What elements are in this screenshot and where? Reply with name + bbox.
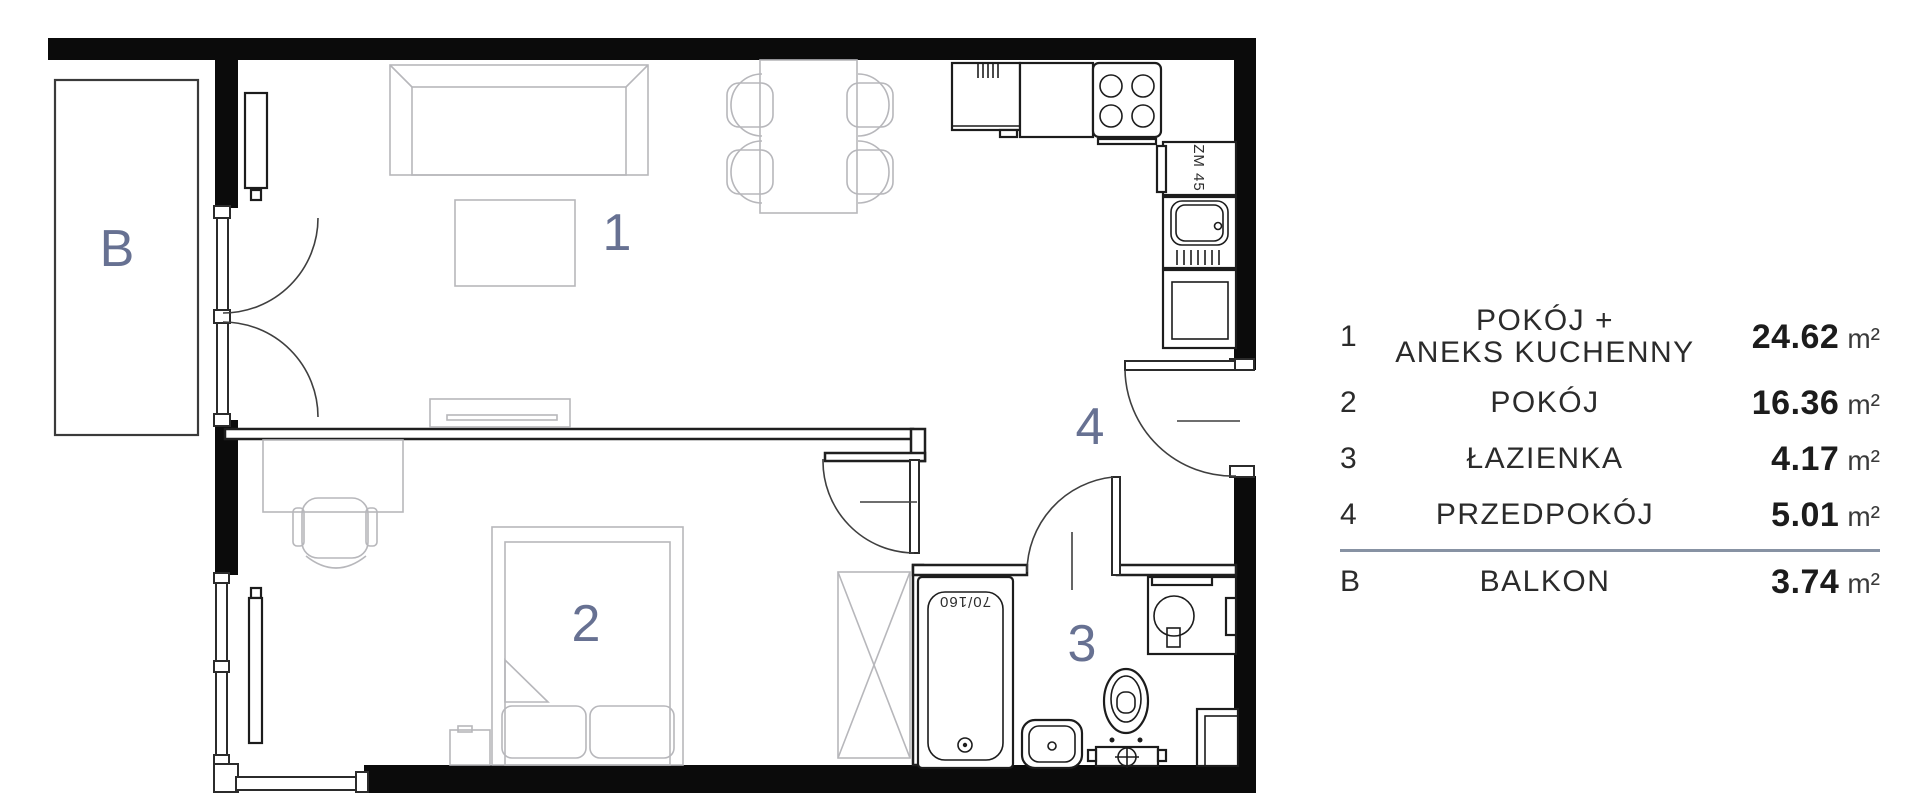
shaft <box>1197 709 1238 766</box>
room1-label: 1 <box>603 204 632 262</box>
area-unit: m² <box>1847 568 1880 599</box>
door-jamb <box>214 206 230 218</box>
fridge <box>952 63 1020 137</box>
window-mullion <box>356 772 368 792</box>
legend-room-name-line: POKÓJ + <box>1390 305 1700 337</box>
wall-right-upper <box>1234 38 1256 370</box>
legend-room-name: ŁAZIENKA <box>1390 443 1700 475</box>
wall-top <box>48 38 1256 60</box>
pillow <box>590 706 674 758</box>
stove-handle <box>1098 139 1156 144</box>
door-leaf <box>1112 477 1120 575</box>
legend-room-number: 2 <box>1340 386 1390 420</box>
legend-room-number: 1 <box>1340 320 1390 354</box>
floorplan-page: B <box>0 0 1920 808</box>
door-swing-arc <box>223 322 318 417</box>
dishwasher-size-label: ZM 45 <box>1190 144 1207 192</box>
balcony: B <box>55 80 198 435</box>
pillow <box>502 706 586 758</box>
area-legend: 1 POKÓJ + ANEKS KUCHENNY 24.62m² 2 POKÓJ… <box>1340 299 1880 612</box>
office-chair <box>293 498 377 568</box>
dining-chair <box>727 141 773 203</box>
area-value: 24.62 <box>1752 318 1840 356</box>
door-swing-arc <box>823 459 914 553</box>
fridge-body <box>952 63 1020 130</box>
counter-cabinet <box>1163 270 1236 348</box>
washbasin <box>1022 720 1082 768</box>
legend-row: 4 PRZEDPOKÓJ 5.01m² <box>1340 487 1880 543</box>
wall-room1-room2 <box>225 429 913 439</box>
dining-set <box>727 60 893 213</box>
dining-chair <box>847 141 893 203</box>
room4-label: 4 <box>1076 398 1105 456</box>
bathroom-fixtures: 70/160 <box>918 577 1238 768</box>
legend-room-name-line: PRZEDPOKÓJ <box>1390 499 1700 531</box>
door-leaf <box>910 460 919 553</box>
washing-machine <box>1148 577 1236 654</box>
area-value: 4.17 <box>1771 440 1839 478</box>
wall-bottom <box>364 765 1236 793</box>
wall-bath-top-right <box>1117 565 1236 575</box>
legend-room-number: 3 <box>1340 442 1390 476</box>
legend-room-area: 3.74m² <box>1700 563 1880 602</box>
legend-room-area: 24.62m² <box>1700 318 1880 357</box>
wall-left-middle <box>215 420 238 575</box>
kitchen-sink <box>1163 197 1236 268</box>
legend-row: 3 ŁAZIENKA 4.17m² <box>1340 431 1880 487</box>
kitchen: ZM 45 <box>952 63 1236 348</box>
legend-row: 1 POKÓJ + ANEKS KUCHENNY 24.62m² <box>1340 299 1880 375</box>
radiator <box>249 588 262 743</box>
dining-chair <box>847 74 893 136</box>
bathtub: 70/160 <box>918 577 1013 768</box>
balcony-label: B <box>100 220 135 278</box>
stove <box>1093 63 1161 144</box>
tv-cabinet <box>430 399 570 427</box>
area-unit: m² <box>1847 445 1880 476</box>
window-bottom-bedroom <box>214 764 368 792</box>
door-jamb <box>214 414 230 426</box>
legend-room-name: POKÓJ + ANEKS KUCHENNY <box>1390 305 1700 369</box>
legend-room-name: BALKON <box>1390 566 1700 598</box>
legend-room-name-line: ŁAZIENKA <box>1390 443 1700 475</box>
radiator <box>245 93 267 200</box>
blanket-fold <box>505 660 548 702</box>
area-value: 16.36 <box>1752 384 1840 422</box>
legend-row: 2 POKÓJ 16.36m² <box>1340 375 1880 431</box>
bathtub-size-label: 70/160 <box>939 593 991 610</box>
window-mullion <box>214 661 229 672</box>
door-swing-arc <box>1125 370 1236 476</box>
window-frame <box>236 777 362 790</box>
tub-drain-dot <box>963 743 967 747</box>
door-swing-arc <box>1027 477 1113 572</box>
sink-unit <box>1163 197 1236 268</box>
coffee-table <box>455 200 575 286</box>
door-swing-arc <box>223 218 318 313</box>
kitchen-counter <box>1020 63 1093 137</box>
area-unit: m² <box>1847 389 1880 420</box>
door-leaf <box>1125 361 1235 370</box>
legend-room-area: 4.17m² <box>1700 440 1880 479</box>
bedroom-door <box>823 459 919 553</box>
legend-row: B BALKON 3.74m² <box>1340 552 1880 612</box>
legend-room-number: B <box>1340 565 1390 599</box>
window-mullion <box>214 573 229 583</box>
stove-body <box>1093 63 1161 137</box>
legend-room-number: 4 <box>1340 498 1390 532</box>
dining-table <box>760 60 857 213</box>
toilet <box>1088 669 1166 768</box>
balcony-door <box>214 206 318 426</box>
legend-room-area: 16.36m² <box>1700 384 1880 423</box>
wall-left-upper <box>215 60 238 208</box>
area-unit: m² <box>1847 323 1880 354</box>
door-jamb <box>214 310 230 323</box>
entrance-door <box>1125 359 1254 477</box>
legend-room-name-line: POKÓJ <box>1390 387 1700 419</box>
fridge-foot <box>1000 130 1017 137</box>
living-room-furniture: 1 <box>245 60 893 427</box>
window-left-bedroom <box>214 573 229 765</box>
sink-drainer-lines <box>1177 250 1219 265</box>
tv <box>447 415 557 420</box>
area-value: 3.74 <box>1771 563 1839 601</box>
area-value: 5.01 <box>1771 496 1839 534</box>
desk <box>263 440 403 512</box>
legend-room-area: 5.01m² <box>1700 496 1880 535</box>
area-unit: m² <box>1847 501 1880 532</box>
sofa <box>390 65 648 175</box>
bathroom-door <box>1027 477 1120 590</box>
room3-label: 3 <box>1068 615 1097 673</box>
room2-label: 2 <box>572 595 601 653</box>
bedroom-furniture: 2 <box>249 440 910 765</box>
interior-walls <box>225 429 1236 765</box>
legend-room-name: POKÓJ <box>1390 387 1700 419</box>
dishwasher: ZM 45 <box>1157 142 1236 195</box>
dishwasher-front <box>1157 146 1166 192</box>
legend-room-name-line: ANEKS KUCHENNY <box>1390 337 1700 369</box>
wall-bath-top-left <box>913 565 1027 575</box>
dining-chair <box>727 74 773 136</box>
wardrobe <box>838 572 910 758</box>
window-corner <box>214 764 238 792</box>
nightstand <box>450 726 490 765</box>
legend-room-name-line: BALKON <box>1390 566 1700 598</box>
legend-room-name: PRZEDPOKÓJ <box>1390 499 1700 531</box>
